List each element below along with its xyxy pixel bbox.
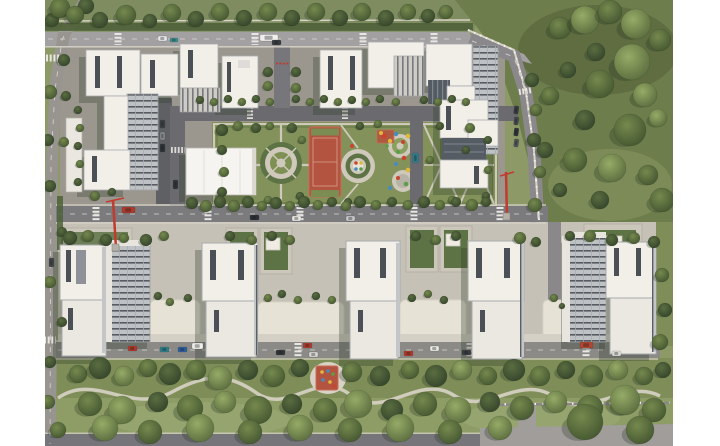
tree	[584, 230, 596, 242]
tree	[426, 156, 434, 164]
tree	[252, 95, 260, 103]
tree	[184, 294, 192, 302]
tree	[553, 183, 567, 197]
tree	[242, 196, 254, 208]
buildings-top-block-shape	[252, 148, 256, 195]
buildings-bottom-row-shape	[636, 248, 641, 276]
tree	[89, 357, 111, 379]
tree	[270, 197, 282, 209]
tree	[76, 160, 84, 168]
buildings-top-block-shape	[95, 56, 100, 88]
tree	[44, 356, 56, 368]
play-equipment	[350, 144, 354, 148]
tree	[332, 10, 348, 26]
tree	[139, 359, 157, 377]
tree	[307, 3, 325, 21]
tree	[236, 10, 252, 26]
tree	[186, 360, 206, 380]
tree	[563, 148, 587, 172]
play-equipment	[359, 161, 363, 165]
tree	[44, 276, 56, 288]
tree	[143, 14, 157, 28]
tree	[341, 201, 351, 211]
buildings-bottom-row-shape	[206, 301, 256, 357]
tree	[334, 98, 342, 106]
tree	[638, 165, 658, 185]
tree	[292, 95, 300, 103]
tree	[435, 200, 445, 210]
buildings-top-block-shape	[150, 60, 155, 88]
tree	[186, 414, 214, 442]
tree	[550, 294, 558, 302]
tree	[481, 197, 491, 207]
car-windshield	[583, 343, 589, 347]
buildings-bottom-row-shape	[396, 243, 400, 357]
tree	[400, 4, 416, 20]
buildings-bottom-row-shape	[76, 250, 86, 284]
tree	[320, 95, 328, 103]
tree	[100, 234, 112, 246]
car-windshield	[172, 39, 176, 41]
buildings-bottom-row-shape	[610, 298, 656, 354]
tree	[63, 231, 77, 245]
tree	[119, 233, 129, 243]
tree	[140, 234, 152, 246]
tree	[586, 70, 614, 98]
tree	[238, 360, 258, 380]
play-equipment	[406, 168, 411, 173]
tree	[621, 9, 651, 39]
tree	[312, 292, 320, 300]
tree	[648, 236, 660, 248]
play-equipment	[332, 384, 336, 388]
play-equipment	[359, 167, 363, 171]
tree	[465, 123, 475, 133]
buildings-top-block-shape	[350, 56, 355, 90]
tree	[587, 43, 605, 61]
tree	[628, 232, 640, 244]
tree	[527, 133, 541, 147]
tree	[224, 95, 232, 103]
tree	[420, 96, 428, 104]
buildings-bottom-row-shape	[380, 248, 386, 278]
tree	[581, 365, 603, 387]
buildings-bottom-row-shape	[562, 236, 570, 342]
tower	[426, 44, 472, 86]
tree	[214, 391, 236, 413]
tree	[530, 104, 542, 116]
tree	[291, 67, 301, 77]
buildings-top-block-shape	[92, 156, 97, 182]
tree	[154, 292, 162, 300]
tree	[608, 360, 628, 380]
tree	[559, 303, 565, 309]
tree	[374, 120, 382, 128]
tree	[148, 392, 168, 412]
tree	[440, 296, 448, 304]
tree	[652, 334, 668, 350]
car-windshield	[406, 352, 410, 355]
car-windshield	[432, 347, 436, 350]
tree	[557, 361, 575, 379]
tower-crane	[506, 172, 507, 218]
tree	[425, 365, 447, 387]
crane-base	[503, 213, 510, 220]
tree	[565, 231, 575, 241]
tree	[354, 196, 366, 208]
car-windshield	[180, 348, 184, 351]
tree	[238, 420, 262, 444]
car-windshield	[161, 146, 163, 151]
tree	[610, 385, 640, 415]
car-windshield	[464, 351, 468, 354]
tree	[278, 290, 286, 298]
tree	[219, 167, 229, 177]
tree	[186, 197, 198, 209]
tree	[238, 98, 246, 106]
car-windshield	[274, 41, 278, 44]
aerial-view-svg	[0, 0, 720, 446]
tree	[69, 365, 87, 383]
tower	[86, 50, 140, 96]
tree	[480, 392, 500, 412]
tree	[606, 234, 618, 246]
buildings-bottom-row-shape	[238, 250, 244, 280]
tree	[479, 367, 497, 385]
tree	[43, 85, 57, 99]
tree	[575, 110, 595, 130]
margin-right	[673, 0, 720, 446]
tree	[591, 191, 609, 209]
tree	[434, 98, 442, 106]
tree	[159, 363, 181, 385]
slab-facade	[127, 94, 158, 190]
play-equipment	[388, 139, 392, 143]
tree	[392, 98, 400, 106]
tree	[92, 12, 108, 28]
tree	[386, 414, 414, 442]
buildings-bottom-row-shape	[350, 301, 398, 359]
tree	[263, 365, 285, 387]
play-equipment	[388, 186, 392, 190]
tree	[598, 154, 626, 182]
tree	[614, 114, 646, 146]
buildings-bottom-row-shape	[66, 250, 71, 282]
tree	[116, 5, 136, 25]
tree	[424, 290, 432, 298]
tree	[356, 122, 364, 130]
car-windshield	[161, 122, 163, 127]
tree	[92, 415, 118, 441]
play-equipment	[406, 134, 411, 139]
tree	[114, 366, 134, 386]
tree	[438, 420, 462, 444]
buildings-top-block-shape	[238, 60, 250, 68]
tree	[138, 420, 162, 444]
tree	[439, 5, 453, 19]
car-windshield	[252, 216, 256, 219]
tree	[294, 296, 302, 304]
tree	[633, 83, 657, 107]
slab-b-facade	[568, 236, 606, 342]
tree	[188, 11, 204, 27]
tree	[626, 416, 654, 444]
tree	[214, 196, 226, 208]
tree	[541, 87, 559, 105]
tree	[462, 98, 470, 106]
car-windshield	[162, 348, 166, 351]
tree	[247, 235, 257, 245]
tree	[403, 200, 413, 210]
tree	[387, 197, 397, 207]
tree	[650, 188, 674, 212]
car-windshield	[348, 217, 352, 220]
tree	[338, 418, 362, 442]
buildings-bottom-row-shape	[210, 250, 216, 280]
tree	[328, 296, 336, 304]
tree	[614, 44, 650, 80]
tree	[370, 366, 390, 386]
play-equipment	[328, 380, 332, 384]
tree	[82, 230, 94, 242]
tree	[78, 392, 102, 416]
car-windshield	[614, 352, 618, 355]
tree	[448, 95, 456, 103]
tree	[257, 201, 267, 211]
buildings-top-block-shape	[328, 56, 333, 90]
tree	[484, 136, 492, 144]
tree	[445, 397, 471, 423]
tree	[298, 136, 306, 144]
play-equipment	[394, 162, 398, 166]
car-windshield	[265, 36, 273, 40]
tree	[362, 98, 370, 106]
buildings-bottom-row-shape	[214, 310, 219, 332]
tree	[58, 54, 70, 66]
courtyard-shape	[311, 190, 339, 197]
tree	[655, 362, 671, 378]
buildings-top-block-shape	[188, 50, 193, 78]
play-equipment	[320, 370, 324, 374]
play-equipment	[394, 132, 398, 136]
tree	[284, 10, 300, 26]
tree	[44, 180, 56, 192]
tree	[510, 396, 534, 420]
tree	[244, 396, 272, 424]
car-windshield	[125, 208, 131, 212]
tree	[371, 200, 381, 210]
tree	[649, 29, 671, 51]
tree	[342, 362, 362, 382]
buildings-top-block-shape	[117, 56, 122, 88]
tree	[251, 123, 261, 133]
play-equipment	[331, 372, 335, 376]
tree	[348, 96, 356, 104]
tree	[66, 6, 84, 24]
buildings-top-block-shape	[446, 106, 451, 130]
tree	[376, 95, 384, 103]
buildings-bottom-row	[60, 232, 656, 359]
tree	[74, 106, 82, 114]
tree	[291, 359, 309, 377]
tree	[401, 361, 419, 379]
buildings-bottom-row-shape	[102, 247, 106, 353]
tree	[74, 142, 82, 150]
tree	[306, 98, 314, 106]
car-windshield	[160, 37, 164, 40]
buildings-bottom-row-shape	[504, 248, 510, 278]
buildings-bottom-row-shape	[68, 308, 73, 330]
tree	[528, 198, 542, 212]
tree	[263, 67, 273, 77]
play-equipment	[401, 140, 405, 144]
tree	[313, 398, 337, 422]
buildings-top-block-shape	[474, 166, 479, 184]
buildings-bottom-row-shape	[520, 243, 524, 357]
tree	[61, 91, 71, 101]
car-windshield	[50, 260, 52, 265]
play-equipment	[404, 182, 409, 187]
pebble-garden	[150, 300, 200, 338]
tree	[291, 83, 301, 93]
play-equipment	[354, 161, 358, 165]
tree	[210, 98, 218, 106]
tree	[411, 231, 421, 241]
tree	[108, 188, 116, 196]
tree	[655, 268, 669, 282]
tree	[534, 166, 546, 178]
tree	[488, 416, 512, 440]
play-equipment	[321, 378, 325, 382]
tree	[74, 178, 82, 186]
play-equipment	[326, 369, 330, 373]
play-equipment	[396, 176, 400, 180]
play-equipment	[379, 131, 383, 135]
buildings-bottom-row-shape	[354, 248, 360, 278]
tree	[313, 200, 323, 210]
slab-a-facade	[110, 244, 150, 342]
tree	[208, 366, 232, 390]
car-windshield	[130, 347, 134, 350]
tree	[451, 197, 461, 207]
buildings-bottom-row-shape	[358, 310, 363, 332]
masterplan-render	[0, 0, 720, 446]
tree	[267, 231, 277, 241]
buildings-bottom-row-shape	[614, 248, 619, 276]
tree	[76, 124, 84, 132]
tree	[287, 123, 297, 133]
tree	[567, 404, 603, 440]
tree	[166, 298, 174, 306]
tree	[266, 98, 274, 106]
tree	[418, 196, 430, 208]
buildings-bottom-row-shape	[476, 248, 482, 278]
tree	[530, 366, 550, 386]
tree	[282, 394, 302, 414]
courtyard-shape	[311, 129, 339, 136]
buildings-bottom-row-shape	[254, 245, 258, 355]
tree	[159, 231, 169, 241]
tree	[503, 359, 525, 381]
tree	[462, 146, 470, 154]
car-windshield	[161, 134, 163, 139]
tree	[413, 392, 437, 416]
car-windshield	[305, 344, 309, 347]
tree	[451, 231, 461, 241]
tree	[353, 3, 371, 21]
tree	[216, 124, 228, 136]
tree	[431, 235, 441, 245]
tree	[560, 62, 576, 78]
tree	[452, 360, 472, 380]
crane-base	[112, 244, 119, 251]
tree	[408, 294, 416, 302]
tree	[285, 235, 295, 245]
car-windshield	[294, 217, 298, 220]
tree	[531, 237, 541, 247]
play-equipment	[354, 167, 358, 171]
right-wing-white	[440, 160, 488, 188]
tree	[378, 10, 394, 26]
buildings-bottom-row-shape	[480, 310, 485, 332]
tree	[225, 231, 235, 241]
buildings-bottom-row-shape	[106, 244, 112, 342]
buildings-bottom-row-shape	[472, 301, 522, 359]
tree	[196, 96, 204, 104]
margin-left	[0, 0, 45, 446]
tree	[163, 4, 181, 22]
car-windshield	[278, 351, 282, 354]
tree	[59, 137, 69, 147]
tree	[545, 391, 567, 413]
car-windshield	[174, 182, 176, 187]
tree	[263, 81, 273, 91]
tree	[327, 197, 337, 207]
tree	[298, 196, 310, 208]
tower	[84, 150, 130, 190]
tree	[421, 9, 435, 23]
tree	[217, 187, 227, 197]
tree	[285, 201, 295, 211]
tree	[466, 199, 478, 211]
tree	[344, 390, 372, 418]
tree	[635, 367, 653, 385]
hedge-top-row	[45, 23, 473, 31]
tree	[525, 73, 539, 87]
play-equipment	[402, 156, 407, 161]
tower-5	[606, 242, 656, 298]
tree	[200, 200, 212, 212]
tree	[233, 121, 243, 131]
entry-drive	[274, 46, 290, 108]
tree	[287, 415, 313, 441]
tree	[90, 191, 100, 201]
tree	[57, 317, 67, 327]
tree	[658, 303, 672, 317]
tree	[571, 6, 599, 34]
tree	[436, 122, 444, 130]
east-drive	[548, 222, 561, 302]
tower	[180, 44, 218, 88]
tree	[266, 122, 274, 130]
car-windshield	[195, 344, 200, 348]
tree	[264, 294, 272, 302]
tree	[50, 422, 66, 438]
tree	[217, 145, 227, 155]
play-equipment	[396, 150, 400, 154]
tree	[598, 0, 622, 24]
buildings-top-block-shape	[227, 62, 231, 92]
